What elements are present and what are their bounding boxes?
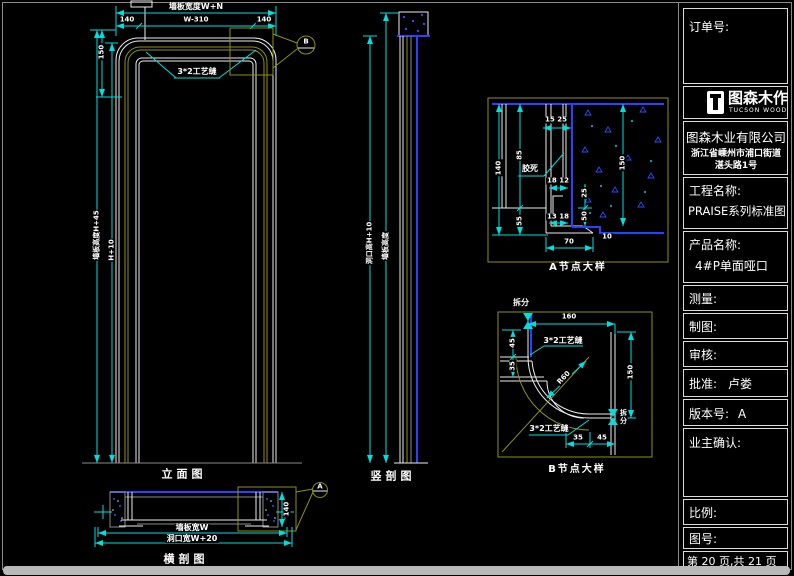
detail-a-marker: A bbox=[316, 484, 323, 491]
titleblock-dwgno-row: 图号: bbox=[683, 527, 788, 549]
company-address-1: 浙江省嵊州市浦口街道 bbox=[691, 150, 781, 159]
da-dim-10: 10 bbox=[601, 234, 613, 241]
db-split-right: 拆分 bbox=[619, 409, 628, 425]
elev-dim-height-outer: 墙板高度H+45 bbox=[94, 209, 101, 260]
db-groove-note-1: 3*2工艺缝 bbox=[542, 337, 583, 345]
order-number-label: 订单号: bbox=[689, 21, 729, 33]
titleblock-approve-row: 批准: 卢娄 bbox=[683, 369, 788, 397]
detail-a-title: A节点大样 bbox=[548, 263, 608, 273]
da-dim-18-12: 18 12 bbox=[546, 178, 570, 185]
draft-label: 制图: bbox=[689, 321, 717, 333]
hatch-dots-h bbox=[113, 498, 275, 522]
titleblock-scale-row: 比例: bbox=[683, 499, 788, 525]
titleblock-measure-row: 测量: bbox=[683, 285, 788, 311]
titleblock-review-row: 审核: bbox=[683, 341, 788, 367]
db-split-top: 拆分 bbox=[512, 299, 530, 307]
da-dim-50: 50 bbox=[582, 210, 589, 222]
logo-title: 图森木作 bbox=[728, 91, 788, 106]
db-groove-note-2: 3*2工艺缝 bbox=[528, 425, 569, 433]
da-dim-70: 70 bbox=[563, 239, 575, 246]
da-dim-150: 150 bbox=[620, 155, 627, 172]
da-dim-85: 85 bbox=[517, 149, 524, 161]
elev-groove-note: 3*2工艺缝 bbox=[176, 68, 217, 76]
logo-subtitle: TUCSON WOOD bbox=[729, 108, 787, 114]
vsec-dim-board: 墙板高度 bbox=[383, 231, 390, 261]
hatch-dots-h2 bbox=[112, 500, 276, 519]
elev-dim-seg-right: 140 bbox=[256, 17, 273, 24]
bottom-status-bar bbox=[3, 566, 790, 575]
elev-dim-seg-mid: W-310 bbox=[183, 17, 210, 24]
hsec-dim-board-width: 墙板宽W bbox=[175, 524, 210, 532]
db-dim-150: 150 bbox=[628, 364, 635, 381]
detail-b-title: B节点大样 bbox=[547, 465, 607, 475]
drawing-no-label: 图号: bbox=[689, 533, 717, 545]
scale-label: 比例: bbox=[689, 507, 717, 519]
hsec-dim-opening-width: 洞口宽W+20 bbox=[166, 535, 219, 543]
company-address-2: 湛头路1号 bbox=[715, 162, 757, 171]
titleblock-project-row: 工程名称: PRAISE系列标准图 bbox=[683, 177, 788, 229]
db-dim-45-left: 45 bbox=[510, 337, 517, 349]
titleblock-draft-row: 制图: bbox=[683, 313, 788, 339]
product-label: 产品名称: bbox=[689, 239, 741, 251]
detail-b-marker: B bbox=[302, 39, 309, 46]
cad-sheet: 墙板宽度W+N 140 W-310 140 150 3*2工艺缝 B 墙板高度H… bbox=[0, 0, 794, 576]
titleblock-version-row: 版本号: A bbox=[683, 399, 788, 426]
hsection-title: 横剖图 bbox=[163, 554, 210, 565]
elev-dim-height-inner: H+10 bbox=[109, 238, 116, 261]
elevation-title: 立面图 bbox=[161, 469, 208, 480]
da-dim-140: 140 bbox=[496, 160, 503, 177]
da-dim-25: 25 bbox=[582, 187, 589, 199]
measure-label: 测量: bbox=[689, 293, 717, 305]
db-dim-35-left: 35 bbox=[510, 360, 517, 372]
titleblock-order-row: 订单号: bbox=[683, 8, 788, 84]
da-dim-13-18: 13 18 bbox=[546, 214, 570, 221]
drawing-canvas bbox=[0, 0, 794, 576]
product-value: 4#P单面哑口 bbox=[695, 260, 768, 272]
version-value: A bbox=[738, 408, 746, 420]
company-name: 图森木业有限公司 bbox=[686, 132, 786, 145]
db-dim-160: 160 bbox=[561, 314, 578, 321]
da-dim-15-25: 15 25 bbox=[544, 117, 568, 124]
project-label: 工程名称: bbox=[689, 185, 741, 197]
approve-label: 批准: bbox=[689, 378, 717, 390]
titleblock-product-row: 产品名称: 4#P单面哑口 bbox=[683, 231, 788, 283]
sheet-border bbox=[3, 3, 792, 571]
vsection-title: 竖剖图 bbox=[370, 471, 417, 482]
elev-dim-head: 150 bbox=[99, 44, 106, 61]
db-dim-35-bottom: 35 bbox=[572, 435, 584, 442]
detail-a-lines bbox=[488, 98, 668, 262]
da-note-glue: 胶死 bbox=[521, 165, 539, 173]
version-label: 版本号: bbox=[689, 408, 729, 420]
titleblock-owner-row: 业主确认: bbox=[683, 428, 788, 497]
elev-dim-total: 墙板宽度W+N bbox=[168, 3, 224, 11]
titleblock-company-row: 图森木业有限公司 浙江省嵊州市浦口街道 湛头路1号 bbox=[683, 121, 788, 175]
project-value: PRAISE系列标准图 bbox=[688, 206, 786, 218]
approve-value: 卢娄 bbox=[728, 378, 752, 390]
hsec-dim-thickness: 140 bbox=[284, 501, 291, 518]
tucson-wood-logo-icon bbox=[707, 91, 724, 114]
da-dim-55: 55 bbox=[517, 215, 524, 227]
elev-dim-seg-left: 140 bbox=[119, 17, 136, 24]
owner-confirm-label: 业主确认: bbox=[689, 437, 741, 449]
review-label: 审核: bbox=[689, 349, 717, 361]
titleblock-logo-row: 图森木作 TUCSON WOOD bbox=[683, 86, 788, 119]
db-dim-45-bottom: 45 bbox=[596, 435, 608, 442]
vsec-dim-opening: 洞口高H+10 bbox=[367, 221, 374, 265]
